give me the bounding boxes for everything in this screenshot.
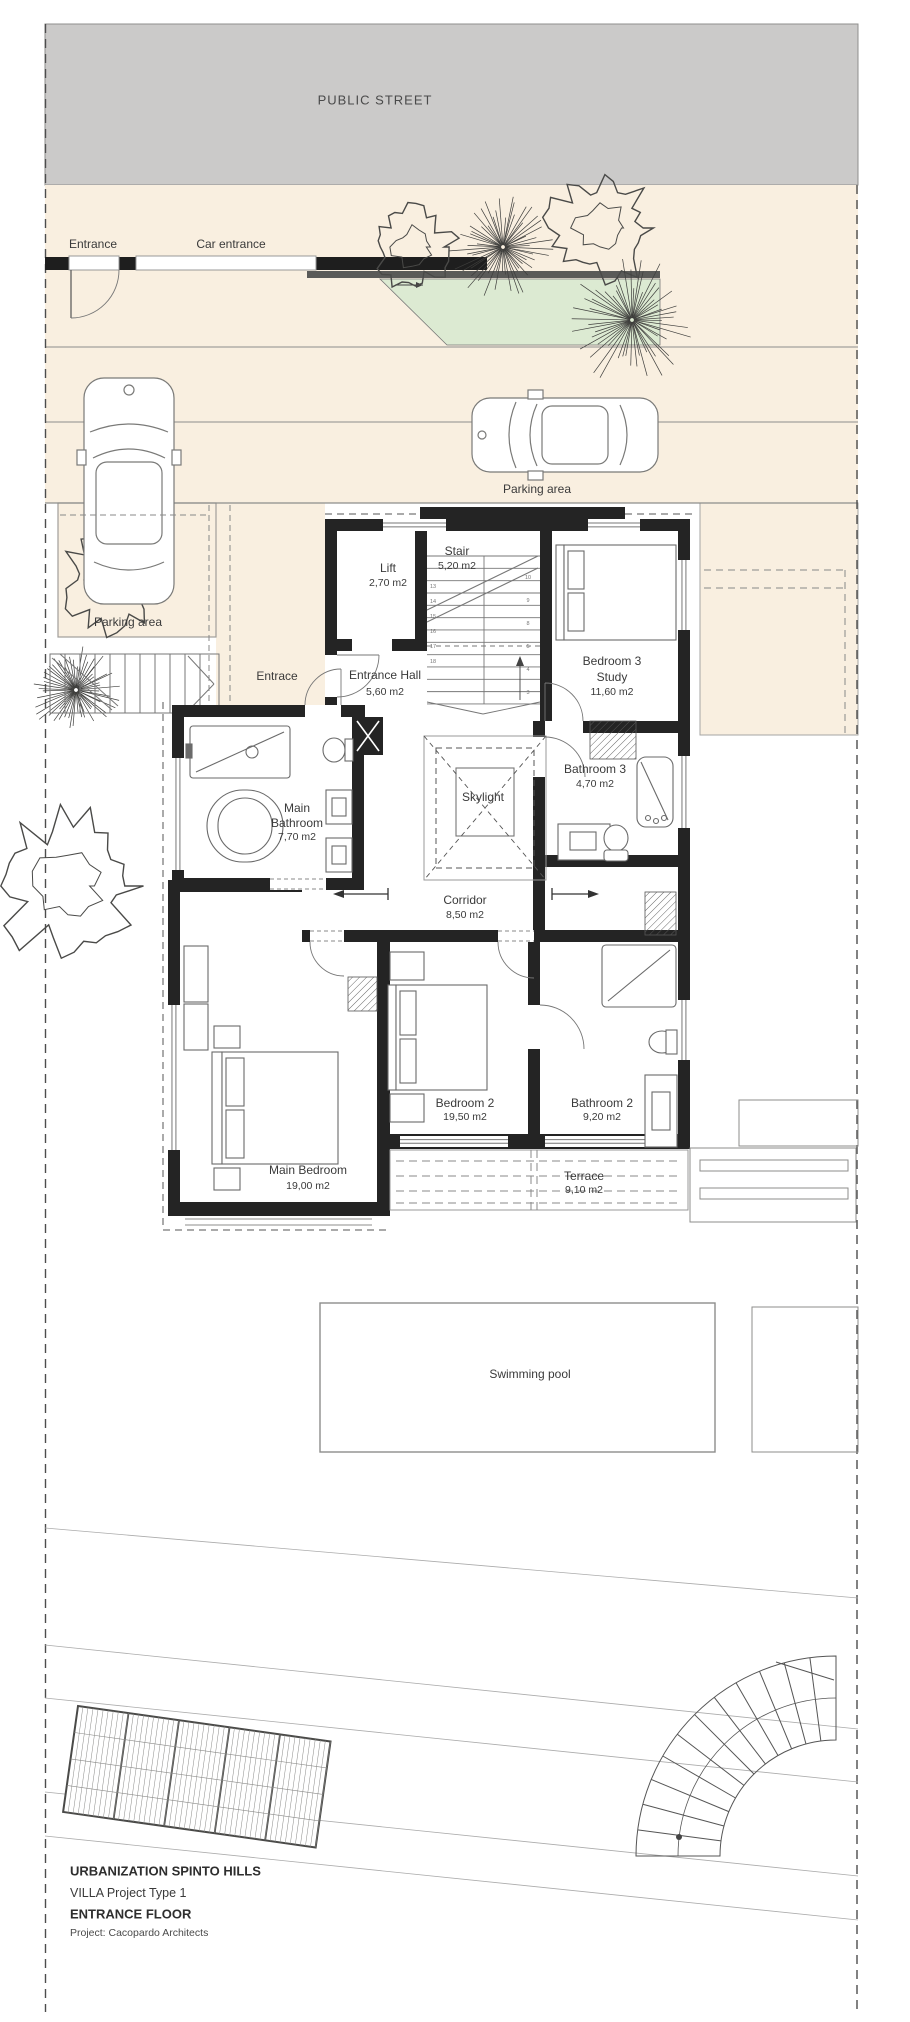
parking-area-top-label: Parking area [503,482,571,496]
room-label-bedroom3-study: Study [597,670,628,684]
swimming-pool [320,1303,858,1452]
room-label-stair: Stair [445,544,470,558]
title-project-name: URBANIZATION SPINTO HILLS [70,1864,261,1879]
room-area-stair: 5,20 m2 [438,560,476,572]
room-label-bedroom2: Bedroom 2 [436,1096,495,1110]
bathtub-bathroom3 [637,757,673,827]
room-label-lift: Lift [380,561,396,575]
room-label-skylight: Skylight [462,790,504,804]
floor-plan-drawing [0,0,910,2022]
vanity-main-bathroom [326,790,352,872]
room-label-corridor: Corridor [443,893,486,907]
skylight-drawing [424,736,546,880]
stair-step-number: 5 [526,644,529,650]
stair-step-number: 9 [526,598,529,604]
room-area-entrance-hall: 5,60 m2 [366,686,404,698]
wardrobe-main-bedroom [184,946,208,1050]
title-floor-name: ENTRANCE FLOOR [70,1907,191,1922]
shower-bathroom2 [602,945,676,1007]
vanity-bathroom2 [645,1075,677,1147]
interior-stair [427,556,540,714]
room-label-bathroom3: Bathroom 3 [564,762,626,776]
car-entrance-label: Car entrance [196,237,265,251]
terrace-deck [390,1150,688,1210]
stair-step-number: 8 [526,621,529,627]
toilet-main-bathroom [323,738,353,762]
car-mirror [77,450,86,465]
stair-step-number: 4 [526,667,529,673]
room-label-main-bedroom: Main Bedroom [269,1163,347,1177]
room-area-bathroom3: 4,70 m2 [576,778,614,790]
stair-up-arrow [516,656,524,666]
stair-step-number: 10 [525,575,531,581]
street-label: PUBLIC STREET [318,93,433,108]
floor-plan-sheet: PUBLIC STREET Entrance Car entrance Park… [0,0,910,2022]
stair-step-number: 16 [430,629,436,635]
shaft [353,717,383,755]
stair-step-number: 17 [430,644,436,650]
room-area-corridor: 8,50 m2 [446,909,484,921]
title-architect: Project: Cacopardo Architects [70,1927,208,1939]
room-area-main-bathroom: 7,70 m2 [278,831,316,843]
room-area-bedroom3: 11,60 m2 [591,686,634,698]
car-top-view-vertical [77,378,181,604]
room-area-bedroom2: 19,50 m2 [443,1111,487,1123]
pool-label: Swimming pool [489,1367,570,1381]
curved-stair [636,1656,836,1856]
pedestrian-gate [69,256,119,270]
room-area-lift: 2,70 m2 [369,577,407,589]
stair-step-number: 14 [430,599,436,605]
bed-bedroom3 [556,545,676,640]
toilet-bathroom2 [649,1030,677,1054]
car-mirror [528,471,543,480]
car-mirror [528,390,543,399]
entrance-gate-label: Entrance [69,237,117,251]
room-label-main-bathroom-1: Main [284,801,310,815]
parking-area-left-label: Parking area [94,615,162,629]
public-street-band [45,24,858,185]
toilet-bathroom3 [604,825,628,861]
car-mirror [172,450,181,465]
curb-strip [307,271,660,278]
vanity-bathroom3 [558,824,610,860]
window-sill [185,1219,372,1225]
stair-step-number: 15 [430,614,436,620]
room-label-terrace: Terrace [564,1169,604,1183]
car-gate [136,256,316,270]
solar-panels [63,1706,330,1847]
room-label-entrance-hall: Entrance Hall [349,668,421,682]
car-top-view-horizontal [472,390,658,480]
room-area-main-bedroom: 19,00 m2 [286,1180,330,1192]
room-label-bedroom3: Bedroom 3 [583,654,642,668]
stair-step-number: 3 [526,690,529,696]
room-label-bathroom2: Bathroom 2 [571,1096,633,1110]
shower-main-bathroom [186,726,290,778]
room-label-main-bathroom-2: Bathroom [271,816,323,830]
stair-step-number: 13 [430,584,436,590]
room-area-terrace: 9,10 m2 [565,1184,603,1196]
stair-step-number: 18 [430,659,436,665]
title-villa-type: VILLA Project Type 1 [70,1886,187,1900]
garden-steps-east [690,1100,858,1222]
walkway-entrance-label: Entrace [256,669,297,683]
room-area-bathroom2: 9,20 m2 [583,1111,621,1123]
